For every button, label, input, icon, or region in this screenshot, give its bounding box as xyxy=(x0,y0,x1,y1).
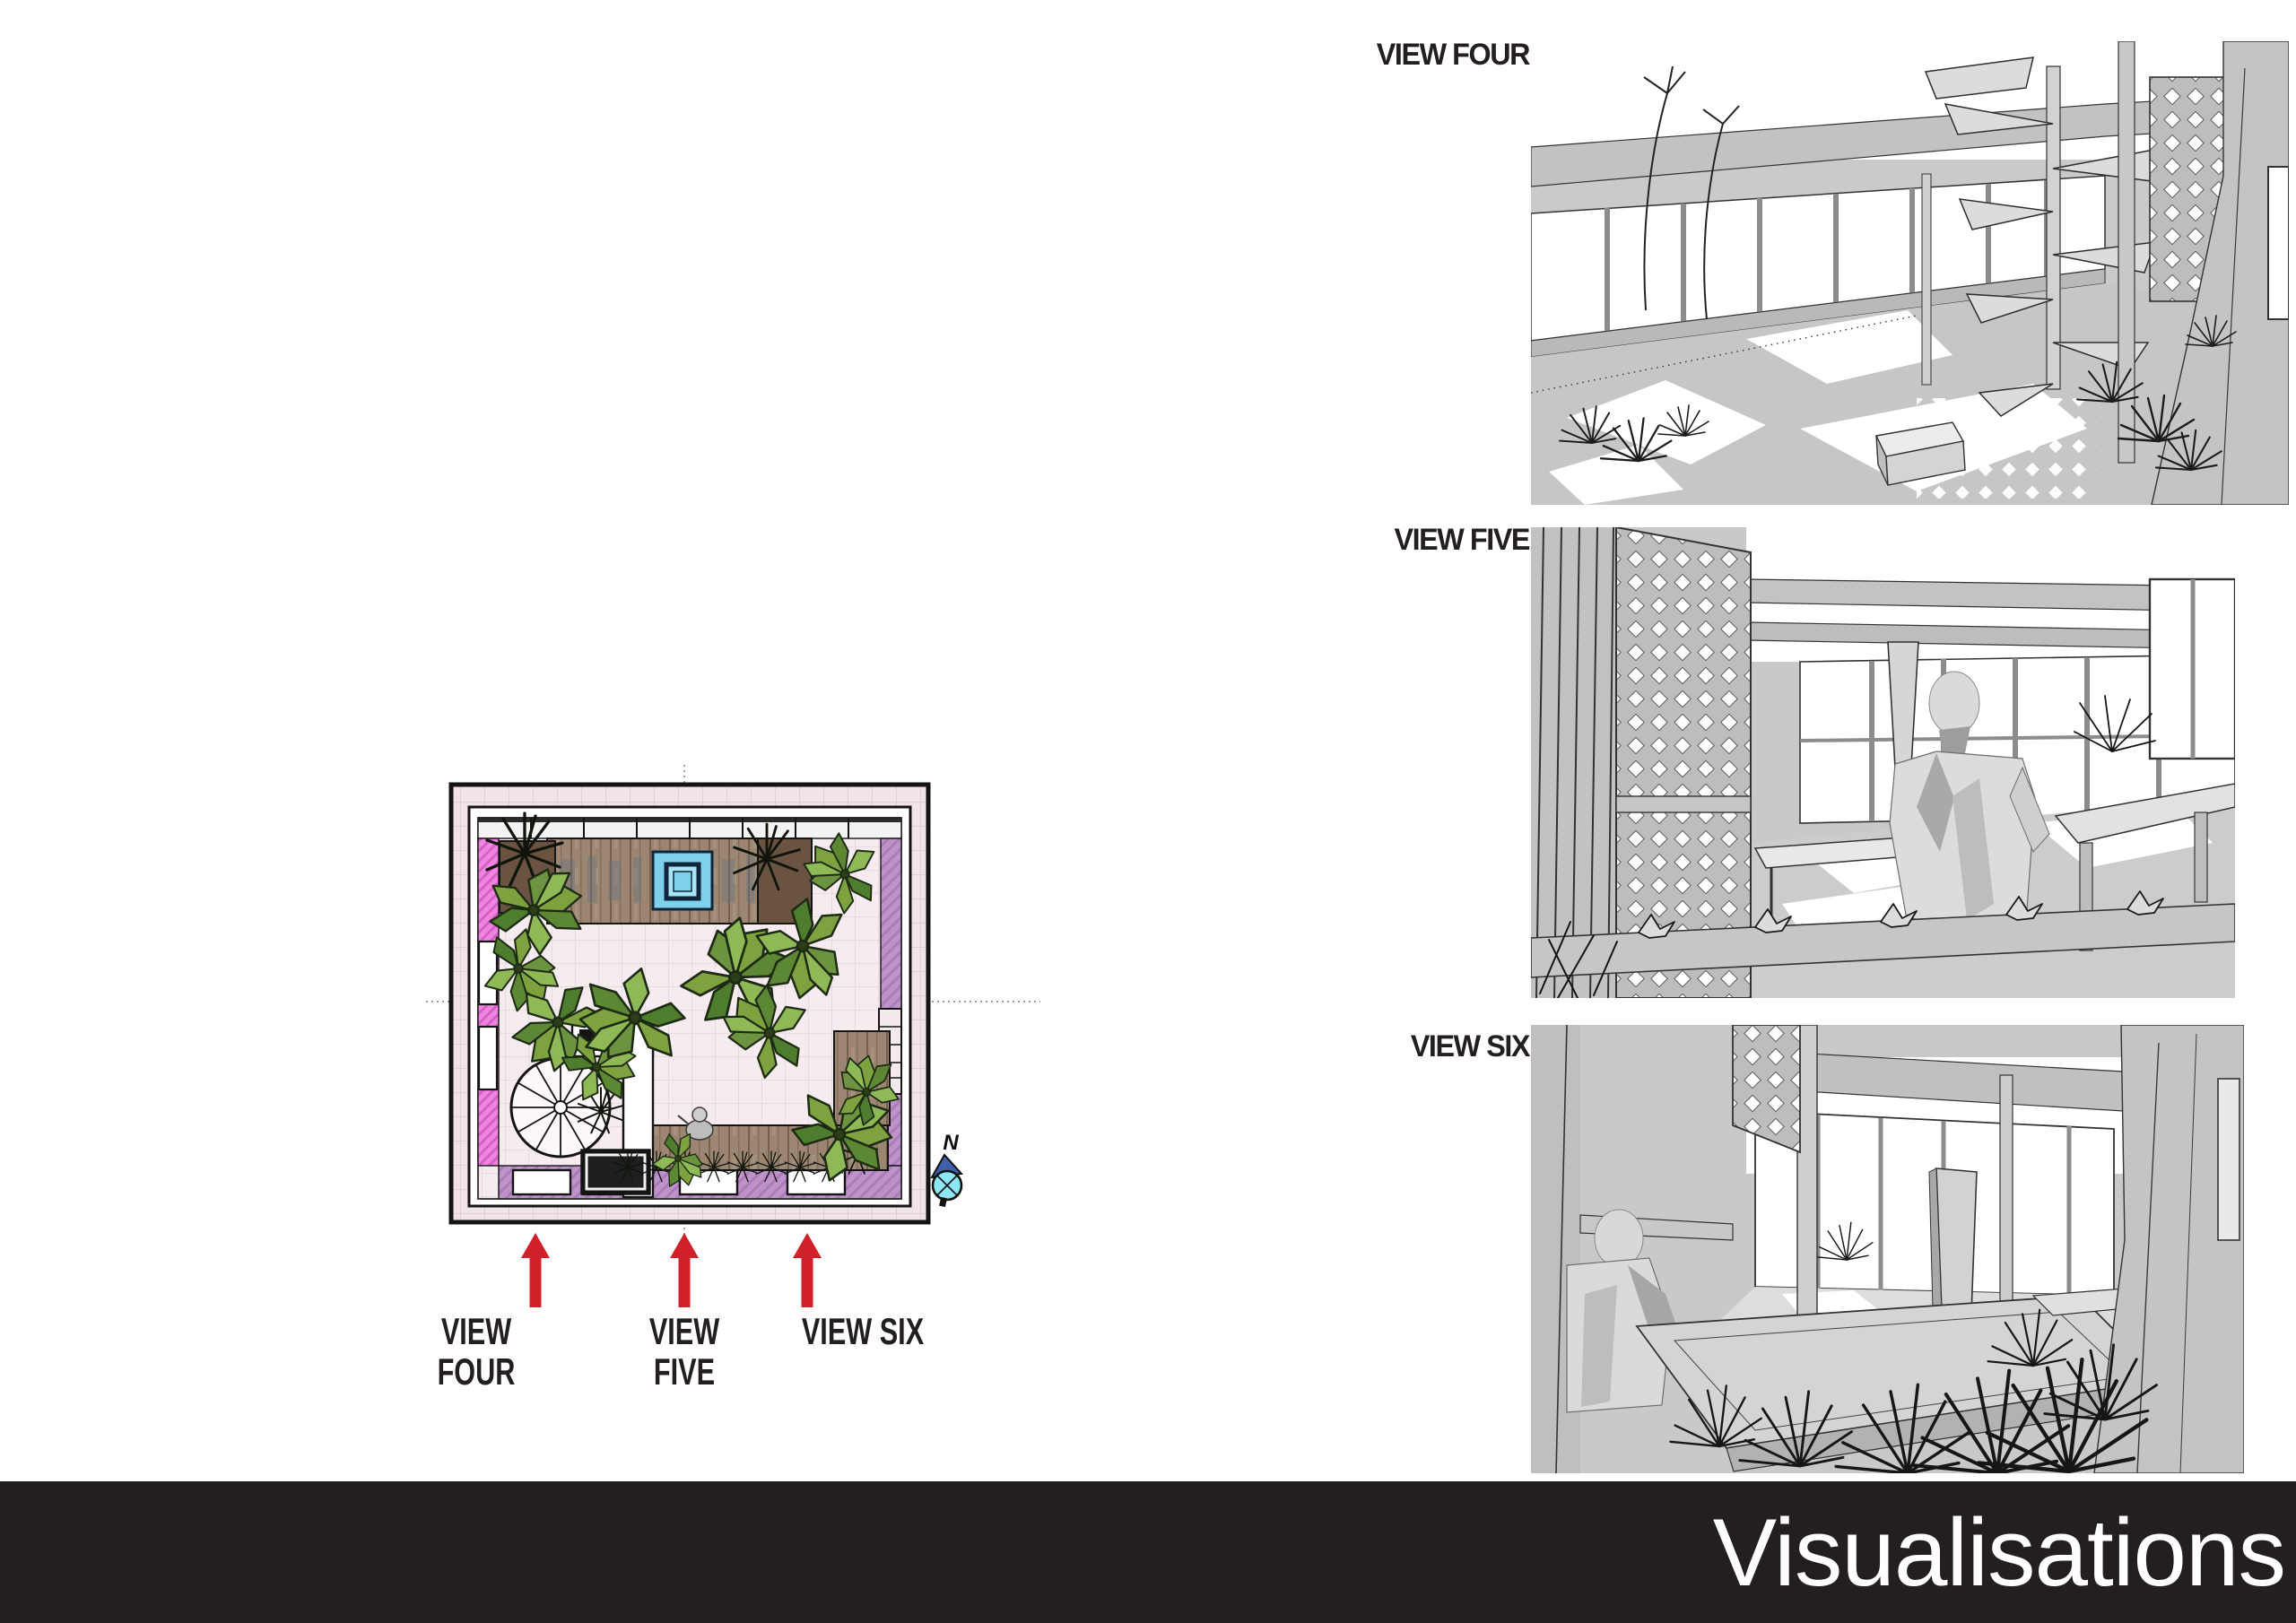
compass-n-label: N xyxy=(943,1131,959,1155)
render-label-view-six: VIEW SIX xyxy=(1188,1029,1529,1064)
floor-plan-illustration: N xyxy=(413,753,1058,1318)
view-arrows xyxy=(521,1233,822,1307)
plan-label-view-four: VIEW FOUR xyxy=(404,1311,549,1392)
north-arrow-icon: N xyxy=(932,1131,961,1207)
plan-label-view-six: VIEW SIX xyxy=(791,1311,935,1351)
page-title: Visualisations xyxy=(1713,1505,2285,1601)
render-label-view-five: VIEW FIVE xyxy=(1188,523,1529,558)
view-six-arrow xyxy=(793,1233,822,1307)
view-five-arrow xyxy=(670,1233,699,1307)
footer-bar: Visualisations xyxy=(0,1481,2296,1623)
render-view-six xyxy=(1531,1025,2244,1473)
view-four-arrow xyxy=(521,1233,550,1307)
render-view-four xyxy=(1531,41,2289,505)
pool xyxy=(653,852,712,909)
presentation-sheet: { "page": { "title": "Visualisations" },… xyxy=(0,0,2296,1623)
plan-label-view-five: VIEW FIVE xyxy=(613,1311,757,1392)
render-label-view-four: VIEW FOUR xyxy=(1188,38,1529,73)
render-view-five xyxy=(1531,527,2235,998)
